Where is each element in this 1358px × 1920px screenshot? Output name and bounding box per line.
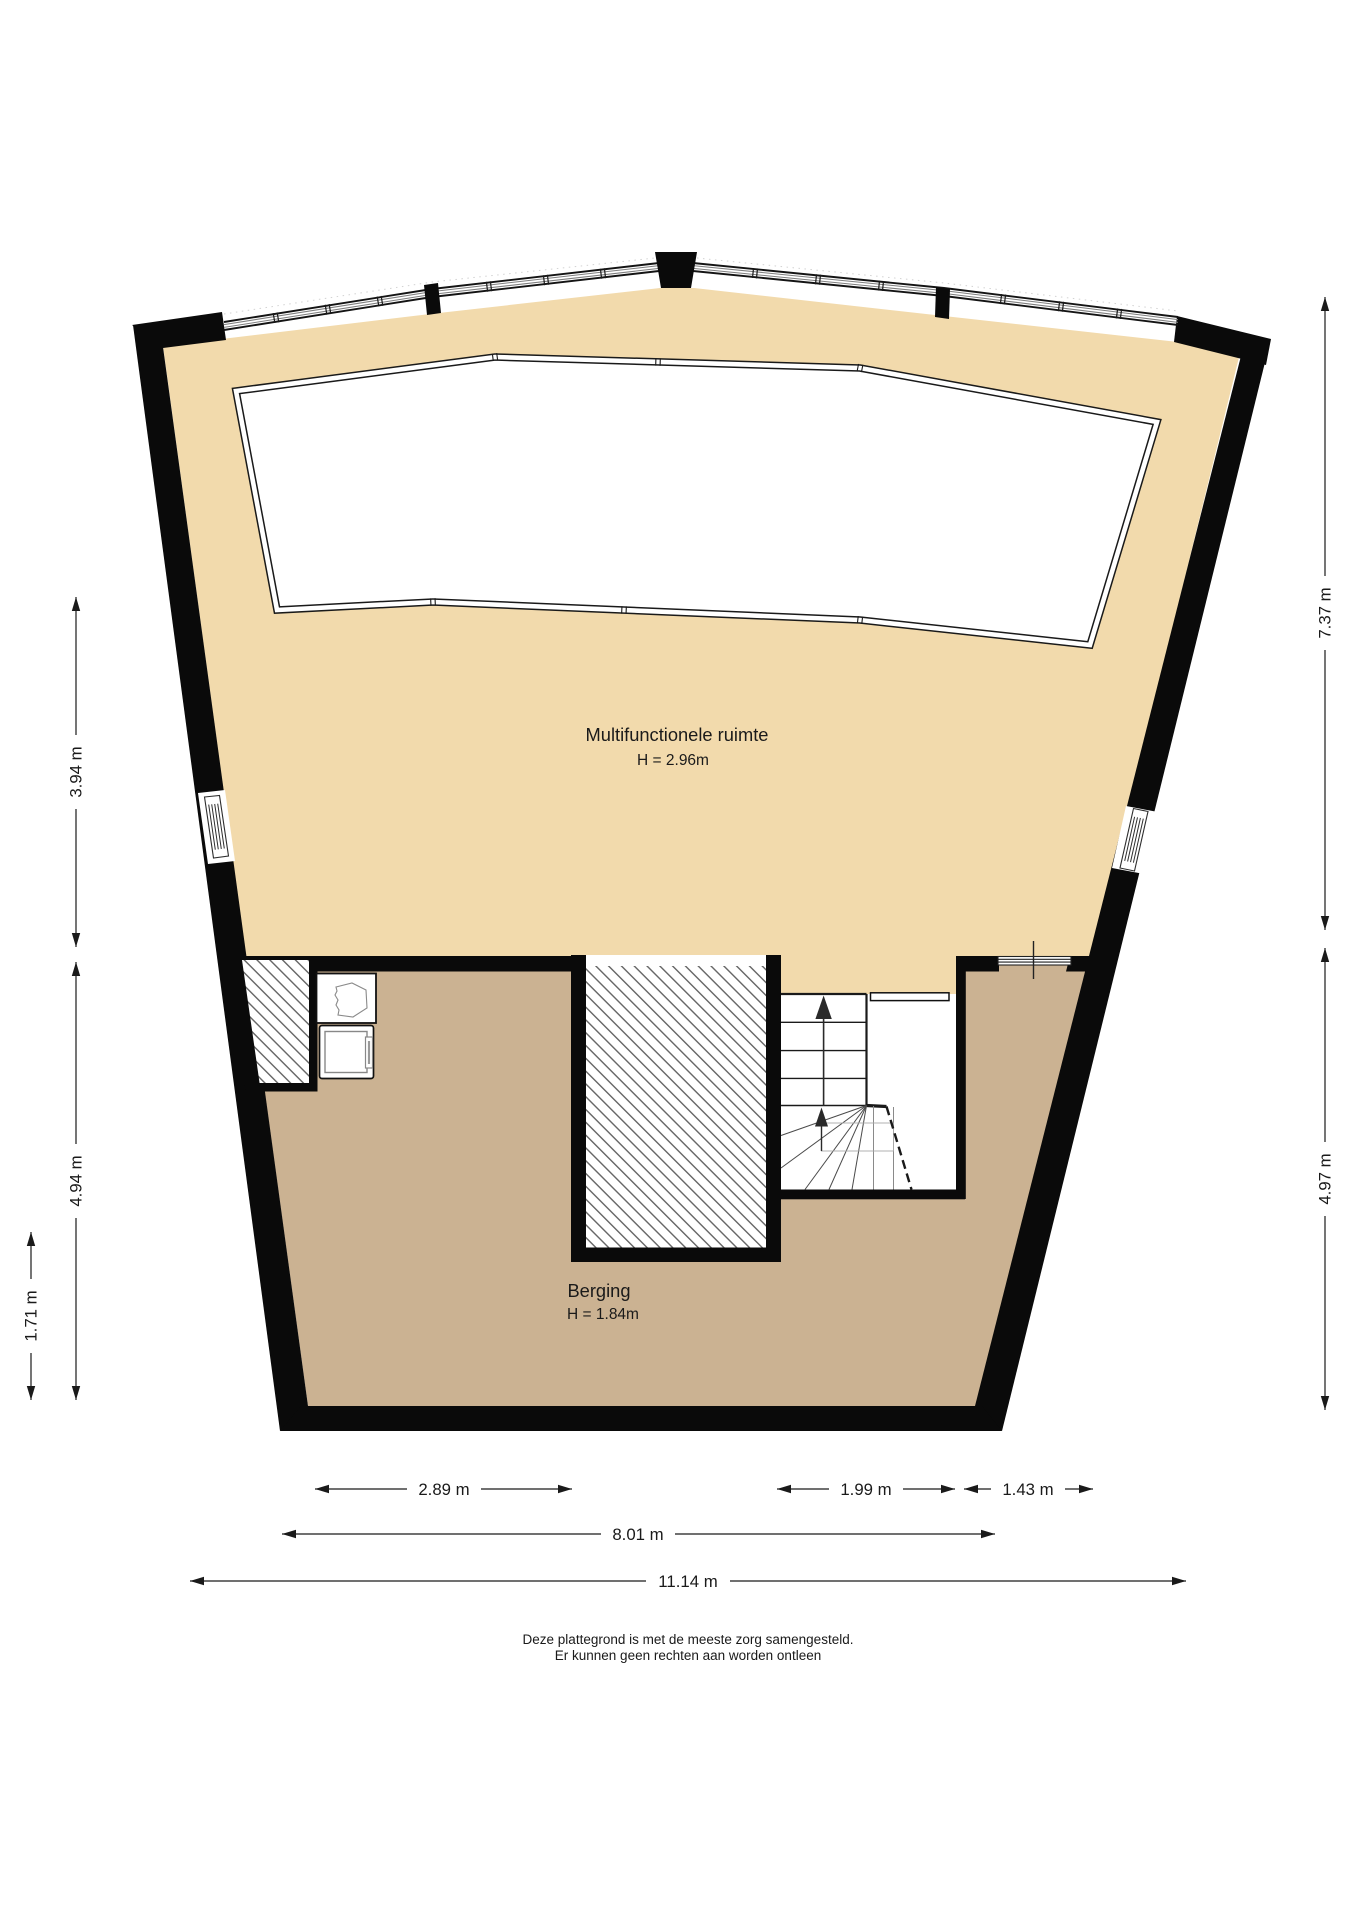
svg-text:Berging: Berging: [567, 1280, 630, 1301]
svg-text:11.14 m: 11.14 m: [658, 1572, 717, 1591]
svg-text:Multifunctionele ruimte: Multifunctionele ruimte: [586, 724, 769, 745]
svg-text:Deze plattegrond is met de mee: Deze plattegrond is met de meeste zorg s…: [523, 1632, 854, 1647]
svg-text:4.97 m: 4.97 m: [1316, 1153, 1335, 1204]
svg-text:8.01 m: 8.01 m: [612, 1525, 663, 1544]
svg-text:2.89 m: 2.89 m: [418, 1480, 469, 1499]
svg-text:1.71 m: 1.71 m: [22, 1290, 41, 1341]
svg-text:Er kunnen geen rechten aan wor: Er kunnen geen rechten aan worden ontlee…: [555, 1648, 821, 1663]
svg-text:7.37 m: 7.37 m: [1316, 587, 1335, 638]
svg-text:4.94 m: 4.94 m: [67, 1155, 86, 1206]
svg-text:3.94 m: 3.94 m: [67, 746, 86, 797]
svg-text:H = 2.96m: H = 2.96m: [637, 752, 709, 769]
svg-text:1.43 m: 1.43 m: [1002, 1480, 1053, 1499]
svg-text:1.99 m: 1.99 m: [840, 1480, 891, 1499]
svg-text:H = 1.84m: H = 1.84m: [567, 1306, 639, 1323]
